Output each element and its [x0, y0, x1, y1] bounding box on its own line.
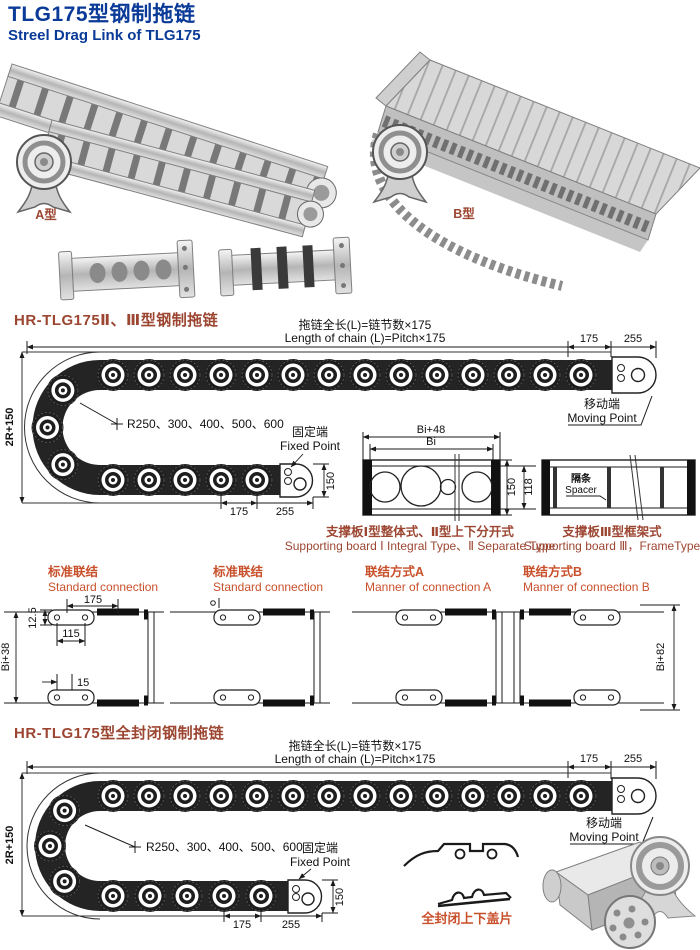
- board3-caption-en: Supporting board Ⅲ，FrameType: [524, 539, 700, 553]
- dim-175-top-2: 175: [580, 753, 598, 765]
- chain-length-cn-2: 拖链全长(L)=链节数×175: [289, 738, 422, 753]
- std-connection-1-en: Standard connection: [48, 580, 158, 594]
- dim-bi48: Bi+48: [417, 424, 445, 436]
- moving-point-en-2: Moving Point: [569, 830, 639, 844]
- dim-175-bottom: 175: [230, 506, 248, 518]
- crossbar-photo-2: [218, 237, 352, 300]
- spacer-label-cn: 隔条: [571, 472, 592, 485]
- board12-caption-en: Supporting board Ⅰ Integral Type、Ⅱ Separ…: [285, 539, 556, 553]
- catalog-page: TLG175型钢制拖链 Streel Drag Link of TLG175 A…: [0, 0, 700, 950]
- dim-15: 15: [77, 677, 89, 689]
- crossbar-photo-1: [58, 240, 195, 304]
- cover-plate-caption: 全封闭上下盖片: [420, 911, 512, 926]
- dim-255-top: 255: [624, 333, 642, 345]
- dim-255-top-2: 255: [624, 753, 642, 765]
- bend-radius-note-2: R250、300、400、500、600: [146, 840, 303, 854]
- connection-unit-3: [352, 609, 512, 707]
- dim-175-top: 175: [580, 333, 598, 345]
- cover-plate-profiles: [404, 844, 518, 906]
- dim-255-bottom: 255: [276, 506, 294, 518]
- std-connection-2-en: Standard connection: [213, 580, 323, 594]
- dim-150-fixed-2: 150: [334, 888, 346, 906]
- roller-emblem-a-icon: [17, 135, 71, 212]
- std-connection-1-cn: 标准联结: [47, 564, 99, 579]
- fixed-end-bracket: [280, 464, 313, 497]
- dim-2r150-2: 2R+150: [4, 826, 16, 865]
- dim-150-board: 150: [506, 478, 518, 496]
- dim-118-board: 118: [523, 478, 535, 496]
- moving-point-cn: 移动端: [584, 397, 620, 411]
- board3-caption-cn: 支撑板Ⅲ型框架式: [561, 524, 662, 539]
- connection-a-en: Manner of connection A: [365, 580, 491, 594]
- dim-255-bottom-2: 255: [282, 919, 300, 931]
- fixed-point-cn-2: 固定端: [302, 840, 338, 855]
- drawing-tlg175-enclosed: 拖链全长(L)=链节数×175 Length of chain (L)=Pitc…: [0, 736, 700, 950]
- fixed-point-en-2: Fixed Point: [290, 855, 351, 869]
- chain2-rollers-bend: [34, 795, 81, 898]
- connection-unit-2: [170, 609, 330, 707]
- connection-a-cn: 联结方式A: [365, 564, 424, 579]
- connection-unit-4: [504, 609, 664, 707]
- dim-175-bottom-2: 175: [233, 919, 251, 931]
- dim-bi82: Bi+82: [655, 643, 667, 671]
- moving-point-en: Moving Point: [567, 411, 637, 425]
- dim-bi: Bi: [426, 436, 436, 448]
- connection-b-cn: 联结方式B: [523, 564, 582, 579]
- chain-length-en: Length of chain (L)=Pitch×175: [285, 331, 446, 345]
- connection-b-en: Manner of connection B: [523, 580, 650, 594]
- chain-rollers-bend: [32, 374, 79, 480]
- type-b-label: B型: [453, 206, 475, 221]
- std-connection-2-cn: 标准联结: [212, 564, 264, 579]
- supporting-board-1-2: Bi+48 Bi 150 118: [363, 424, 536, 521]
- supporting-board-3: 隔条 Spacer: [542, 455, 695, 520]
- type-b-photo: [370, 52, 700, 286]
- chain-length-cn: 拖链全长(L)=链节数×175: [299, 317, 432, 332]
- page-title: TLG175型钢制拖链: [8, 3, 201, 27]
- dim-175-conn: 175: [84, 594, 102, 606]
- chain-rollers-bottom: [97, 464, 273, 496]
- connection-diagrams: 标准联结 Standard connection 标准联结 Standard c…: [0, 560, 700, 724]
- chain-length-en-2: Length of chain (L)=Pitch×175: [275, 752, 436, 766]
- enclosed-link-photo: [543, 837, 695, 948]
- dim-115: 115: [62, 628, 80, 640]
- board12-caption-cn: 支撑板Ⅰ型整体式、Ⅱ型上下分开式: [325, 524, 514, 539]
- type-a-label: A型: [35, 207, 57, 222]
- fixed-point-en: Fixed Point: [280, 439, 341, 453]
- spacer-label-en: Spacer: [565, 485, 597, 496]
- dim-bi38: Bi+38: [0, 643, 12, 671]
- product-photos: A型: [0, 50, 700, 308]
- fixed-end-bracket-2: [288, 880, 322, 913]
- dim-12-5: 12.5: [27, 607, 39, 628]
- moving-end-bracket-2: [612, 778, 656, 814]
- fixed-point-cn: 固定端: [292, 424, 328, 439]
- page-subtitle: Streel Drag Link of TLG175: [8, 27, 201, 45]
- moving-point-cn-2: 移动端: [586, 816, 622, 830]
- chain2-rollers-bottom: [97, 880, 277, 912]
- dim-2r150: 2R+150: [4, 408, 16, 447]
- drawing-tlg175-open: 拖链全长(L)=链节数×175 Length of chain (L)=Pitc…: [0, 310, 700, 560]
- bend-radius-note: R250、300、400、500、600: [127, 417, 284, 431]
- moving-end-bracket: [612, 357, 656, 393]
- dim-150-fixed: 150: [325, 472, 337, 490]
- page-header: TLG175型钢制拖链 Streel Drag Link of TLG175: [8, 3, 201, 45]
